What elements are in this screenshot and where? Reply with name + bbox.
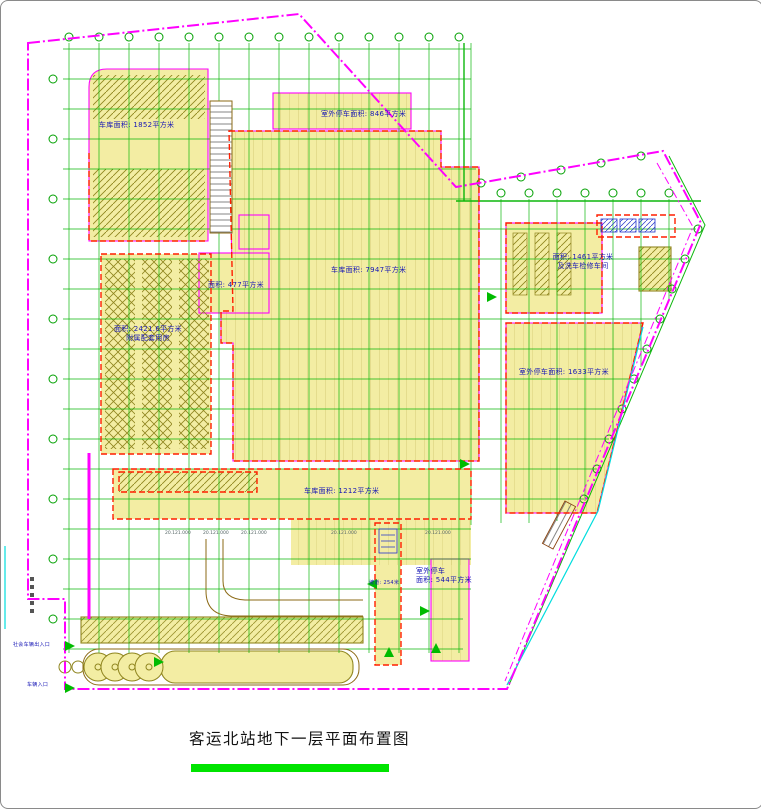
- label-entrance-vehicle: 车辆入口: [27, 682, 48, 689]
- label-ramp-note: 坡道: 254米: [369, 580, 399, 587]
- left-road-marks: [30, 577, 34, 613]
- label-depot-right-line1: 面积: 1461平方米: [541, 253, 625, 262]
- label-depot-right-line2: 及洗车检修车间: [541, 262, 625, 271]
- floor-plan-canvas: 车库面积: 1852平方米 室外停车面积: 846平方米 车库面积: 7947平…: [0, 0, 761, 809]
- label-garage-topleft: 车库面积: 1852平方米: [99, 121, 174, 130]
- label-annex-left: 面积: 2421.6平方米 附属配套用房: [105, 325, 191, 343]
- elevation-stamp: 20.121.000: [425, 531, 451, 536]
- title-underline: [191, 764, 389, 772]
- arrow-right-icon: [420, 606, 430, 616]
- elevation-stamp: 20.121.000: [241, 531, 267, 536]
- label-outdoor-right: 室外停车面积: 1633平方米: [519, 368, 609, 377]
- label-annex-left-line1: 面积: 2421.6平方米: [105, 325, 191, 334]
- label-entrance-social-vehicle: 社会车辆出入口: [13, 642, 50, 649]
- arrow-right-icon: [487, 292, 497, 302]
- stair-core: [210, 101, 232, 233]
- area-southwest-island: [161, 651, 353, 683]
- arrow-right-icon: [65, 641, 75, 651]
- label-room-477: 面积: 477平方米: [208, 281, 264, 290]
- elevation-stamp: 20.121.000: [331, 531, 357, 536]
- label-annex-left-line2: 附属配套用房: [105, 334, 191, 343]
- label-garage-center: 车库面积: 7947平方米: [331, 266, 406, 275]
- elevation-stamp: 20.121.000: [203, 531, 229, 536]
- label-depot-right: 面积: 1461平方米 及洗车检修车间: [541, 253, 625, 271]
- elevation-stamp: 20.121.000: [165, 531, 191, 536]
- arrow-right-icon: [65, 683, 75, 693]
- label-outdoor-top: 室外停车面积: 846平方米: [321, 110, 406, 119]
- label-garage-south: 车库面积: 1212平方米: [304, 487, 379, 496]
- label-outdoor-southeast-line2: 面积: 544平方米: [416, 576, 472, 585]
- label-outdoor-southeast-line1: 室外停车: [416, 567, 472, 576]
- label-outdoor-southeast: 室外停车 面积: 544平方米: [416, 567, 472, 585]
- drawing-title: 客运北站地下一层平面布置图: [189, 727, 410, 749]
